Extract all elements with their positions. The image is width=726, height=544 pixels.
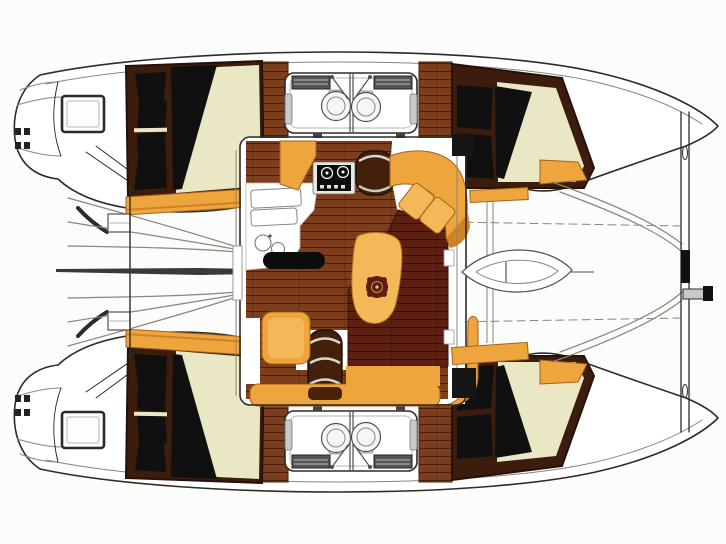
hull-passage-floor: [419, 62, 452, 142]
beam-slot: [683, 147, 688, 160]
settee-tray: [308, 387, 342, 400]
pillow: [457, 85, 493, 130]
bridle-fitting: [681, 250, 690, 283]
sink-basin: [255, 235, 271, 251]
salon-floor-white: [246, 318, 260, 384]
catamaran-floorplan: Top-down interior floor plan line drawin…: [0, 0, 726, 544]
shower-tab: [410, 94, 417, 124]
shower-tab: [285, 94, 292, 124]
pillow-seam: [134, 128, 167, 133]
flower-motif: [366, 276, 388, 298]
galley-bar: [263, 252, 325, 269]
faucet-icon: [268, 234, 271, 237]
aft-settee: [346, 366, 440, 386]
pillow: [134, 132, 167, 190]
aft-settee: [250, 384, 440, 406]
companionway: [452, 134, 474, 156]
wall-tab: [444, 330, 454, 344]
companionway: [452, 368, 476, 398]
sliding-door: [233, 246, 242, 300]
bowsprit-cap: [703, 286, 713, 301]
swivel-chair: [356, 151, 394, 195]
counter: [251, 188, 302, 209]
counter: [251, 208, 298, 226]
pillow: [135, 72, 167, 130]
floorplan-svg: Top-down interior floor plan line drawin…: [0, 0, 726, 544]
side-shelf: [470, 187, 529, 202]
wall-tab: [444, 250, 454, 266]
nav-seat: [262, 312, 310, 364]
